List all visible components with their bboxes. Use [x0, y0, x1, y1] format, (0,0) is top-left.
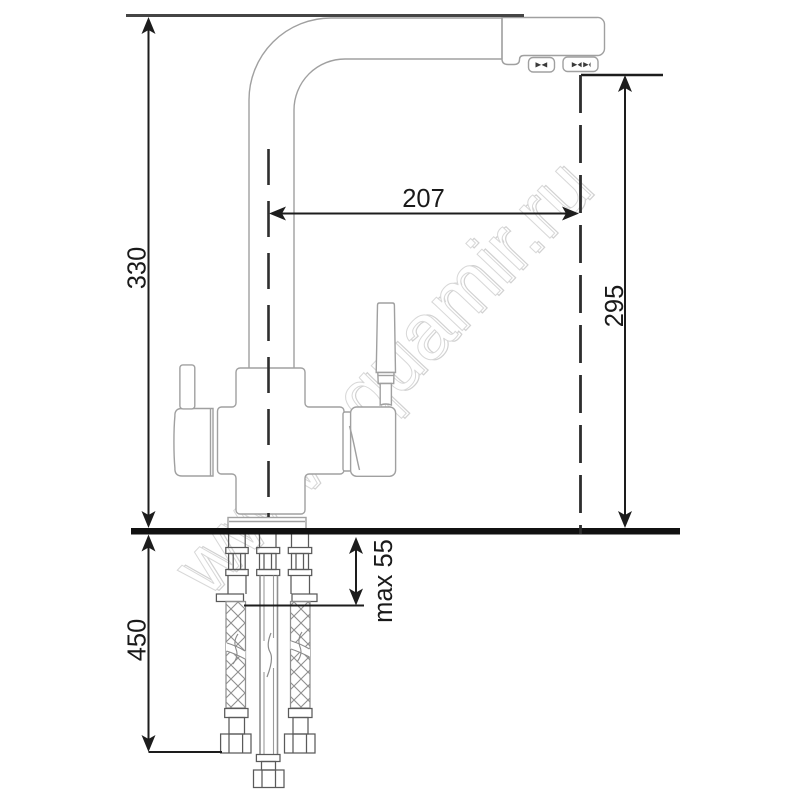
svg-text:295: 295	[601, 285, 629, 328]
svg-text:max 55: max 55	[370, 539, 398, 623]
svg-text:330: 330	[124, 247, 152, 290]
svg-text:450: 450	[124, 619, 152, 662]
svg-text:207: 207	[402, 185, 445, 213]
